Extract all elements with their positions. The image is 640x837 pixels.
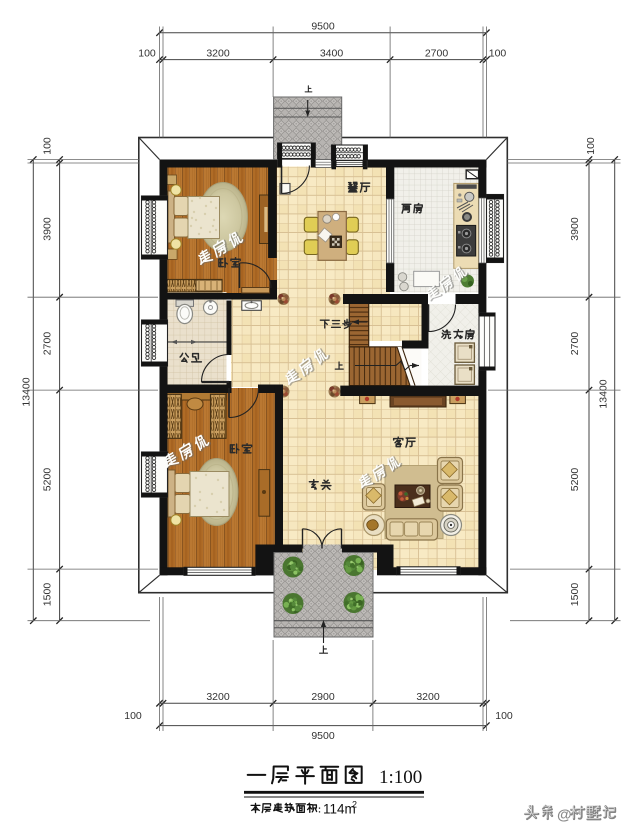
svg-text:100: 100: [124, 710, 142, 722]
svg-text:1500: 1500: [42, 583, 54, 607]
svg-text:13400: 13400: [21, 377, 33, 406]
svg-text::: :: [318, 805, 321, 815]
svg-text:9500: 9500: [311, 21, 335, 33]
svg-text:114m: 114m: [323, 802, 356, 817]
svg-text:100: 100: [495, 710, 513, 722]
svg-text:9500: 9500: [311, 730, 335, 742]
svg-text:100: 100: [138, 48, 156, 60]
svg-text:3200: 3200: [206, 691, 230, 703]
svg-text:2: 2: [352, 800, 357, 810]
svg-text:3900: 3900: [569, 217, 581, 241]
svg-text:3900: 3900: [42, 217, 54, 241]
svg-text:100: 100: [489, 48, 507, 60]
svg-text:2700: 2700: [425, 48, 449, 60]
svg-text:2900: 2900: [311, 691, 335, 703]
svg-text:3200: 3200: [206, 48, 230, 60]
svg-text:13400: 13400: [598, 379, 610, 408]
svg-text:100: 100: [585, 137, 597, 155]
svg-text:2700: 2700: [569, 332, 581, 356]
svg-text:3200: 3200: [416, 691, 440, 703]
svg-text:1500: 1500: [569, 583, 581, 607]
svg-text:2700: 2700: [42, 332, 54, 356]
svg-text:5200: 5200: [42, 468, 54, 492]
svg-text:@: @: [557, 807, 572, 824]
svg-text:3400: 3400: [320, 48, 344, 60]
svg-text:1:100: 1:100: [379, 767, 422, 788]
svg-text:5200: 5200: [569, 468, 581, 492]
svg-text:100: 100: [42, 137, 54, 155]
